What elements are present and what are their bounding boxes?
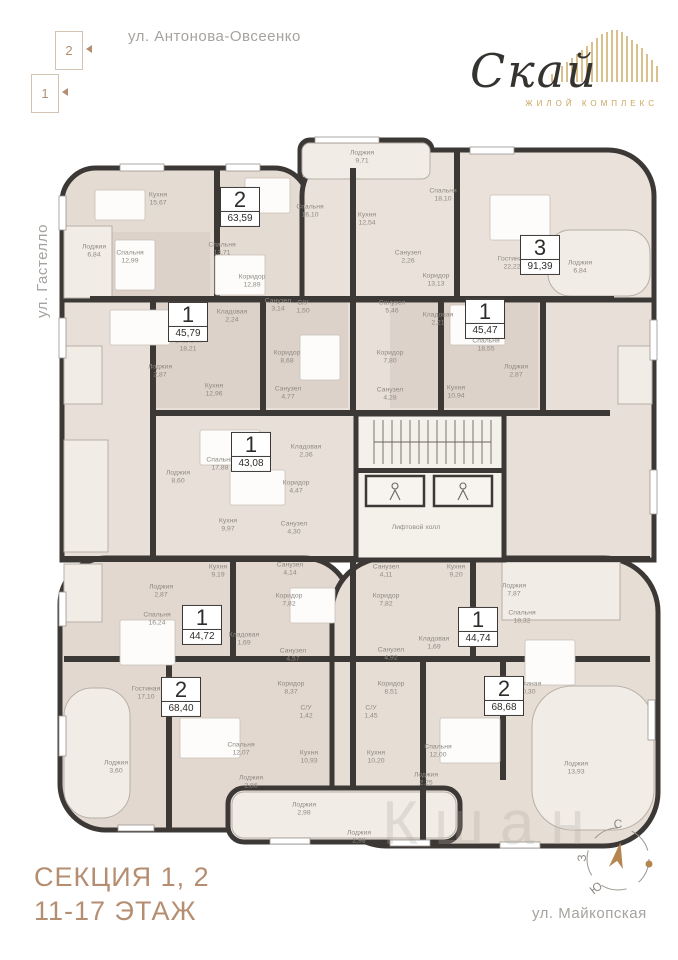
apartment-badge[interactable]: 143,08 [231, 432, 271, 472]
room-area: 3,14 [265, 306, 291, 314]
apartment-badge[interactable]: 144,74 [458, 607, 498, 647]
room-area: 5,46 [379, 308, 405, 316]
room-label: Лоджия2,87 [149, 584, 173, 601]
room-area: 18,32 [508, 618, 535, 626]
room-label: Коридор13,13 [423, 273, 450, 290]
room-label: Коридор8,37 [278, 681, 305, 698]
room-name: Коридор [276, 593, 303, 601]
room-area: 2,36 [291, 452, 321, 460]
room-area: 4,30 [281, 529, 307, 537]
apartment-badge[interactable]: 391,39 [520, 235, 560, 275]
room-label: Лоджия9,71 [350, 150, 374, 167]
room-label: Коридор4,47 [283, 480, 310, 497]
room-label: Кухня12,96 [205, 383, 223, 400]
room-label: Кухня12,54 [358, 212, 376, 229]
room-name: Спальня [206, 457, 233, 465]
room-name: Санузел [379, 300, 405, 308]
room-area: 4,47 [283, 488, 310, 496]
room-label: Кухня9,20 [447, 564, 465, 581]
room-area: 17,10 [132, 694, 161, 702]
apartment-area: 43,08 [232, 457, 270, 471]
room-area: 4,57 [280, 656, 306, 664]
apartment-rooms-count: 1 [183, 606, 221, 630]
room-area: 8,60 [166, 478, 190, 486]
room-name: Кухня [447, 385, 465, 393]
room-area: 4,11 [373, 572, 399, 580]
room-label: С/У1,50 [296, 300, 309, 317]
room-name: Санузел [373, 564, 399, 572]
room-area: 18,10 [429, 196, 456, 204]
room-area: 12,96 [205, 391, 223, 399]
watermark-text: Кшан [382, 788, 601, 859]
room-name: Санузел [265, 298, 291, 306]
room-name: Санузел [275, 386, 301, 394]
compass-north: С [614, 817, 623, 831]
room-name: Санузел [378, 647, 404, 655]
room-area: 1,42 [299, 713, 312, 721]
floor-plan-page: 2 1 ул. Антонова-Овсеенко ул. Гастелло у… [0, 0, 678, 960]
apartment-rooms-count: 1 [232, 433, 270, 457]
room-name: Лоджия [166, 470, 190, 478]
room-area: 13,13 [423, 281, 450, 289]
room-name: Спальня [429, 188, 456, 196]
room-label: Лоджия2,98 [347, 830, 371, 847]
room-label: Кухня15,67 [149, 192, 167, 209]
room-area: 15,67 [149, 200, 167, 208]
room-name: Кухня [149, 192, 167, 200]
apartment-rooms-count: 2 [485, 677, 523, 701]
room-name: Спальня [296, 204, 323, 212]
room-name: Лоджия [292, 802, 316, 810]
room-label: Спальня18,32 [508, 610, 535, 627]
room-name: Лоджия [414, 772, 438, 780]
room-name: Кухня [300, 750, 318, 758]
room-name: Кухня [219, 518, 237, 526]
room-name: Лоджия [350, 150, 374, 158]
room-name: Коридор [377, 350, 404, 358]
room-label: Санузел3,14 [265, 298, 291, 315]
room-label: Лоджия2,98 [292, 802, 316, 819]
room-label: Коридор7,82 [373, 593, 400, 610]
room-name: Спальня [116, 250, 143, 258]
room-name: Коридор [373, 593, 400, 601]
room-area: 12,07 [227, 750, 254, 758]
room-name: Коридор [274, 350, 301, 358]
room-area: 4,28 [377, 395, 403, 403]
room-label: Лоджия13,93 [564, 761, 588, 778]
room-label: Лоджия3,60 [104, 760, 128, 777]
room-name: Коридор [378, 681, 405, 689]
apartment-badge[interactable]: 145,47 [465, 299, 505, 339]
room-name: Лоджия [564, 761, 588, 769]
room-area: 10,93 [300, 758, 318, 766]
room-name: Санузел [277, 562, 303, 570]
room-area: 7,87 [502, 591, 526, 599]
room-area: 12,99 [116, 258, 143, 266]
apartment-area: 68,68 [485, 701, 523, 715]
apartment-area: 68,40 [162, 702, 200, 716]
room-area: 8,51 [378, 689, 405, 697]
room-area: 16,24 [143, 620, 170, 628]
room-area: 2,21 [423, 320, 453, 328]
room-label: Спальня13,71 [208, 242, 235, 259]
apartment-area: 91,39 [521, 260, 559, 274]
room-label: Санузел4,14 [277, 562, 303, 579]
room-name: Санузел [281, 521, 307, 529]
room-label: Коридор7,82 [276, 593, 303, 610]
apartment-rooms-count: 2 [162, 678, 200, 702]
room-area: 9,19 [209, 572, 227, 580]
room-area: 1,69 [419, 644, 449, 652]
room-area: 8,37 [278, 689, 305, 697]
room-area: 13,93 [564, 769, 588, 777]
room-name: Кухня [447, 564, 465, 572]
room-label: Спальня12,99 [116, 250, 143, 267]
room-area: 10,20 [367, 758, 385, 766]
room-area: 17,88 [206, 465, 233, 473]
room-label: Кухня9,97 [219, 518, 237, 535]
room-area: 18,55 [472, 346, 499, 354]
room-area: 2,98 [347, 838, 371, 846]
room-name: С/У [296, 300, 309, 308]
apartment-badge[interactable]: 145,79 [168, 302, 208, 342]
room-name: Кухня [205, 383, 223, 391]
compass-south: Ю [587, 879, 605, 897]
room-area: 2,26 [395, 258, 421, 266]
room-label: Санузел4,77 [275, 386, 301, 403]
room-area: 2,24 [217, 317, 247, 325]
stair-elevator-core [356, 414, 504, 560]
room-name: Коридор [423, 273, 450, 281]
room-name: Кладовая [423, 312, 453, 320]
room-name: Лоджия [568, 260, 592, 268]
room-area: 2,87 [504, 372, 528, 380]
room-name: Кухня [358, 212, 376, 220]
room-name: Санузел [377, 387, 403, 395]
room-name: С/У [364, 705, 377, 713]
room-label: Лоджия8,60 [166, 470, 190, 487]
apartment-rooms-count: 3 [521, 236, 559, 260]
room-name: Лоджия [149, 584, 173, 592]
room-label: Коридор8,51 [378, 681, 405, 698]
room-label: Спальня12,07 [227, 742, 254, 759]
room-label: Лоджия6,84 [568, 260, 592, 277]
room-area: 6,84 [82, 252, 106, 260]
apartment-rooms-count: 1 [466, 300, 504, 324]
room-label: Кухня10,94 [447, 385, 465, 402]
room-label: Спальня16,10 [296, 204, 323, 221]
apartment-area: 45,47 [466, 324, 504, 338]
room-area: 1,45 [364, 713, 377, 721]
room-area: 1,69 [229, 640, 259, 648]
room-label: Кладовая2,36 [291, 444, 321, 461]
apartment-rooms-count: 2 [221, 188, 259, 212]
room-name: Кладовая [419, 636, 449, 644]
room-area: 16,10 [296, 212, 323, 220]
apartment-area: 45,79 [169, 327, 207, 341]
apartment-badge[interactable]: 268,40 [161, 677, 201, 717]
room-name: Санузел [395, 250, 421, 258]
room-name: Спальня [143, 612, 170, 620]
room-label: Кладовая1,69 [419, 636, 449, 653]
apartment-rooms-count: 1 [459, 608, 497, 632]
room-label: Лоджия7,87 [502, 583, 526, 600]
room-label: Кладовая1,69 [229, 632, 259, 649]
room-name: Спальня [227, 742, 254, 750]
room-label: Лоджия2,86 [239, 775, 263, 792]
room-name: Лоджия [104, 760, 128, 768]
room-area: 8,68 [274, 358, 301, 366]
apartment-rooms-count: 1 [169, 303, 207, 327]
room-area: 4,77 [275, 394, 301, 402]
room-name: Санузел [280, 648, 306, 656]
room-name: Лоджия [504, 364, 528, 372]
apartment-badge[interactable]: 263,59 [220, 187, 260, 227]
room-name: Кладовая [229, 632, 259, 640]
room-area: 3,60 [104, 768, 128, 776]
room-area: 4,92 [378, 655, 404, 663]
room-area: 9,97 [219, 526, 237, 534]
apartment-badge[interactable]: 268,68 [484, 676, 524, 716]
room-area: 9,71 [350, 158, 374, 166]
room-name: Спальня [508, 610, 535, 618]
room-label: Спальня17,88 [206, 457, 233, 474]
room-name: Лифтовой холл [392, 524, 440, 532]
compass-icon: С Ю З [572, 812, 664, 904]
apartment-area: 44,74 [459, 632, 497, 646]
room-area: 4,14 [277, 570, 303, 578]
room-area: 7,82 [276, 601, 303, 609]
room-name: Лоджия [148, 364, 172, 372]
room-label: Гостиная17,10 [132, 686, 161, 703]
room-name: Коридор [239, 274, 266, 282]
room-area: 9,20 [447, 572, 465, 580]
room-label: Санузел4,92 [378, 647, 404, 664]
room-area: 12,89 [239, 282, 266, 290]
room-label: С/У1,45 [364, 705, 377, 722]
room-area: 2,98 [292, 810, 316, 818]
room-label: Коридор12,89 [239, 274, 266, 291]
apartment-badge[interactable]: 144,72 [182, 605, 222, 645]
room-area: 13,71 [208, 250, 235, 258]
room-label: Кухня10,20 [367, 750, 385, 767]
room-label: Санузел4,11 [373, 564, 399, 581]
room-area: 12,54 [358, 220, 376, 228]
room-label: Лоджия2,25 [414, 772, 438, 789]
room-name: Коридор [283, 480, 310, 488]
room-area: 10,94 [447, 393, 465, 401]
room-label: Лоджия2,87 [148, 364, 172, 381]
room-label: Санузел4,57 [280, 648, 306, 665]
room-label: Коридор7,80 [377, 350, 404, 367]
room-label: Лифтовой холл [392, 524, 440, 532]
room-label: Спальня18,55 [472, 338, 499, 355]
apartment-area: 44,72 [183, 630, 221, 644]
room-label: Коридор8,68 [274, 350, 301, 367]
room-name: Лоджия [82, 244, 106, 252]
room-label: Санузел2,26 [395, 250, 421, 267]
room-name: Кухня [209, 564, 227, 572]
compass-needle [609, 841, 627, 869]
room-area: 7,82 [373, 601, 400, 609]
room-label: Санузел4,30 [281, 521, 307, 538]
room-area: 2,86 [239, 783, 263, 791]
room-name: Коридор [278, 681, 305, 689]
room-label: Лоджия2,87 [504, 364, 528, 381]
room-label: Кухня10,93 [300, 750, 318, 767]
room-label: Спальня12,00 [424, 744, 451, 761]
room-label: Кладовая2,21 [423, 312, 453, 329]
room-area: 18,21 [174, 346, 201, 354]
room-label: Кухня9,19 [209, 564, 227, 581]
room-name: Спальня [424, 744, 451, 752]
room-name: Кухня [367, 750, 385, 758]
room-label: Лоджия6,84 [82, 244, 106, 261]
room-area: 2,87 [149, 592, 173, 600]
room-name: Спальня [208, 242, 235, 250]
room-name: Кладовая [291, 444, 321, 452]
room-area: 2,87 [148, 372, 172, 380]
room-area: 1,50 [296, 308, 309, 316]
room-name: Лоджия [239, 775, 263, 783]
room-name: Кладовая [217, 309, 247, 317]
room-name: С/У [299, 705, 312, 713]
compass-west: З [575, 854, 589, 861]
compass-east-dot [646, 861, 653, 868]
apartment-area: 63,59 [221, 212, 259, 226]
room-name: Лоджия [347, 830, 371, 838]
room-label: С/У1,42 [299, 705, 312, 722]
room-area: 7,80 [377, 358, 404, 366]
room-area: 6,84 [568, 268, 592, 276]
room-name: Лоджия [502, 583, 526, 591]
room-label: Кладовая2,24 [217, 309, 247, 326]
room-label: Спальня18,10 [429, 188, 456, 205]
room-name: Гостиная [132, 686, 161, 694]
room-label: Спальня16,24 [143, 612, 170, 629]
room-area: 12,00 [424, 752, 451, 760]
room-label: Санузел4,28 [377, 387, 403, 404]
room-label: Санузел5,46 [379, 300, 405, 317]
